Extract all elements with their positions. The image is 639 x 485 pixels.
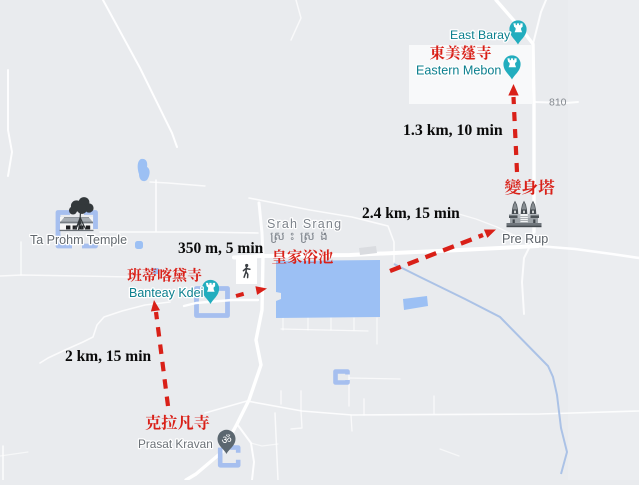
svg-text:2 km, 15 min: 2 km, 15 min xyxy=(65,348,152,365)
svg-text:Banteay Kdei: Banteay Kdei xyxy=(129,286,203,300)
svg-text:2.4 km, 15 min: 2.4 km, 15 min xyxy=(362,205,460,222)
svg-text:East Baray: East Baray xyxy=(450,28,511,42)
svg-text:810: 810 xyxy=(549,97,567,109)
svg-text:Pre Rup: Pre Rup xyxy=(502,232,548,246)
svg-text:Prasat Kravan: Prasat Kravan xyxy=(138,437,213,451)
svg-text:Ta Prohm Temple: Ta Prohm Temple xyxy=(30,233,127,247)
svg-text:350 m, 5 min: 350 m, 5 min xyxy=(178,240,264,257)
svg-text:1.3 km, 10 min: 1.3 km, 10 min xyxy=(403,122,503,139)
svg-text:Srah Srang: Srah Srang xyxy=(267,217,342,231)
svg-text:Eastern Mebon: Eastern Mebon xyxy=(416,64,501,78)
